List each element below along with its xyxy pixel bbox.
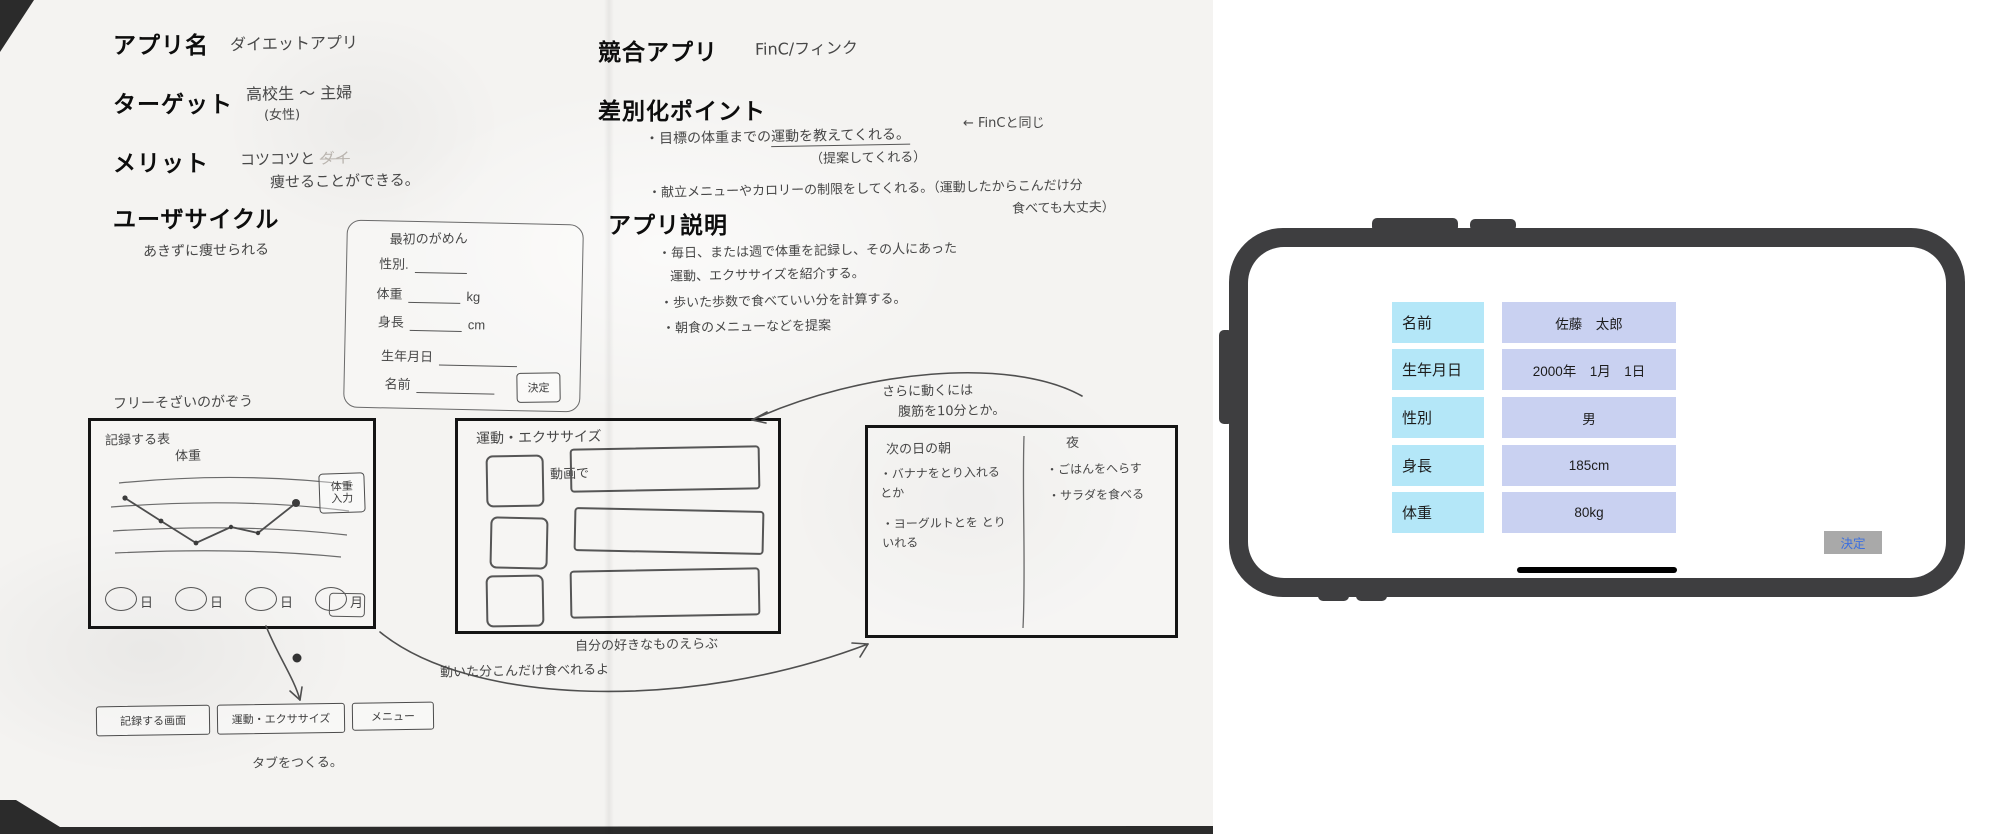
tab-exercise: 運動・エクササイズ xyxy=(217,703,345,735)
wf2-thumb-1 xyxy=(486,454,545,507)
form-label-gender: 性別 xyxy=(1392,397,1484,438)
wf3-night-item-1: ・ごはんをへらす xyxy=(1046,459,1142,478)
phone-screen: 名前 佐藤 太郎 生年月日 2000年 1月 1日 性別 男 身長 185cm … xyxy=(1248,247,1946,578)
competitor-value: FinC/フィンク xyxy=(755,34,858,60)
wf2-caption: 自分の好きなものえらぶ xyxy=(575,633,718,654)
volume-button-nub xyxy=(1219,330,1233,424)
wf2-row-3 xyxy=(570,567,761,618)
wireframe-exercise-screen: 運動・エクササイズ 動画で xyxy=(455,418,781,634)
home-indicator xyxy=(1517,567,1677,573)
tab-record: 記録する画面 xyxy=(96,705,210,737)
target-label: ターゲット xyxy=(113,85,233,119)
scan-shadow-bottom xyxy=(0,800,1213,834)
tab-menu: メニュー xyxy=(352,702,434,731)
sketch-field-name: 名前 xyxy=(384,373,494,394)
merit-erased-text: ダイ xyxy=(320,149,350,168)
wireframe-menu-screen: 次の日の朝 夜 ・バナナをとり入れる とか ・ヨーグルトとを とりいれる ・ごは… xyxy=(865,425,1178,638)
wf1-subtitle: 体重 xyxy=(175,445,201,464)
target-note: (女性) xyxy=(264,104,300,124)
paper-sheet: アプリ名 ダイエットアプリ ターゲット 高校生 〜 主婦 (女性) メリット コ… xyxy=(0,0,1213,834)
app-name-value: ダイエットアプリ xyxy=(230,29,358,55)
screenshot-stage: アプリ名 ダイエットアプリ ターゲット 高校生 〜 主婦 (女性) メリット コ… xyxy=(0,0,2000,834)
desc-bullet-1: ・毎日、または週で体重を記録し、その人にあった xyxy=(658,237,957,261)
submit-button[interactable]: 決定 xyxy=(1824,531,1882,554)
desc-bullet-2: ・歩いた歩数で食べていい分を計算する。 xyxy=(660,288,907,311)
form-value-birthday[interactable]: 2000年 1月 1日 xyxy=(1502,349,1676,390)
form-label-height: 身長 xyxy=(1392,445,1484,486)
wf1-small-box xyxy=(329,593,365,618)
user-cycle-label: ユーザサイクル xyxy=(113,200,279,234)
wf3-morning-item-2: ・ヨーグルトとを とりいれる xyxy=(882,513,1015,552)
first-screen-title: 最初のがめん xyxy=(390,228,468,248)
form-label-weight: 体重 xyxy=(1392,492,1484,533)
phone-mockup: 名前 佐藤 太郎 生年月日 2000年 1月 1日 性別 男 身長 185cm … xyxy=(1229,228,1965,597)
app-name-label: アプリ名 xyxy=(113,26,209,60)
sketch-field-birthday: 生年月日 xyxy=(381,345,517,367)
wf3-morning-item-1: ・バナナをとり入れる とか xyxy=(880,463,1013,502)
target-value: 高校生 〜 主婦 xyxy=(246,79,353,105)
day-circle xyxy=(245,587,277,611)
form-value-name[interactable]: 佐藤 太郎 xyxy=(1502,302,1676,343)
desc-label: アプリ説明 xyxy=(608,206,728,240)
bottom-nub-1 xyxy=(1318,588,1349,601)
sketch-field-weight: 体重kg xyxy=(376,283,480,304)
wf2-row-1 xyxy=(570,445,761,492)
day-circle xyxy=(105,587,137,611)
merit-line2: 痩せることができる。 xyxy=(270,169,420,193)
tabbar-sketch: 記録する画面 運動・エクササイズ メニュー xyxy=(96,702,434,737)
day-circle xyxy=(175,587,207,611)
wireframe-record-screen: 記録する表 体重 体重入力 日 日 xyxy=(88,418,376,629)
form-value-height[interactable]: 185cm xyxy=(1502,445,1676,486)
desc-bullet-3: ・朝食のメニューなどを提案 xyxy=(662,315,831,337)
diff-bullet-1-arrow-note: ← FinCと同じ xyxy=(963,112,1045,131)
form-label-birthday: 生年月日 xyxy=(1392,349,1484,390)
form-label-name: 名前 xyxy=(1392,302,1484,343)
wf3-night-item-2: ・サラダを食べる xyxy=(1048,485,1144,504)
wf3-morning-header: 次の日の朝 xyxy=(886,437,951,457)
sketch-field-gender: 性別. xyxy=(379,253,467,274)
free-material-note: フリーそざいのがぞう xyxy=(113,391,253,413)
wf1-axis-ticks: 日 日 日 月 xyxy=(105,587,363,611)
wf2-thumb-2 xyxy=(489,516,548,569)
tabbar-note: タブをつくる。 xyxy=(252,751,343,772)
wf1-title: 記録する表 xyxy=(105,428,170,448)
wf3-night-header: 夜 xyxy=(1066,432,1079,451)
wf3-note-1: さらに動くには xyxy=(882,379,973,400)
first-screen-sketch: 最初のがめん 性別. 体重kg 身長cm 生年月日 名前 決定 xyxy=(343,220,584,413)
merit-label: メリット xyxy=(113,144,209,178)
competitor-label: 競合アプリ xyxy=(598,33,718,67)
wf3-note-2: 腹筋を10分とか。 xyxy=(898,399,1006,420)
wf2-thumb-3 xyxy=(486,574,545,627)
wf2-title: 運動・エクササイズ xyxy=(476,426,602,448)
power-button-nub xyxy=(1372,218,1458,232)
diff-bullet-1-note: （提案してくれる） xyxy=(810,146,927,167)
desc-bullet-1-cont: 運動、エクササイズを紹介する。 xyxy=(670,262,865,284)
merit-line1: コツコツと ダイ xyxy=(240,147,350,170)
wf2-row-2 xyxy=(574,507,765,555)
user-cycle-value: あきずに痩せられる xyxy=(143,239,269,261)
bottom-nub-2 xyxy=(1356,588,1387,601)
diff-label: 差別化ポイント xyxy=(598,92,766,126)
diff-bullet-1: ・目標の体重までの運動を教えてくれる。 xyxy=(645,124,910,149)
wf3-divider-line xyxy=(1018,436,1030,628)
sketch-submit-button: 決定 xyxy=(516,372,560,403)
scan-shadow-top-left xyxy=(0,0,36,54)
flow-note: 動いた分こんだけ食べれるよ xyxy=(440,659,609,681)
side-button-nub xyxy=(1470,219,1516,231)
diff-bullet-2-cont: 食べても大丈夫） xyxy=(1012,196,1115,217)
form-value-weight[interactable]: 80kg xyxy=(1502,492,1676,533)
sketch-field-height: 身長cm xyxy=(378,311,486,332)
form-value-gender[interactable]: 男 xyxy=(1502,397,1676,438)
weight-input-button-sketch: 体重入力 xyxy=(318,472,365,514)
